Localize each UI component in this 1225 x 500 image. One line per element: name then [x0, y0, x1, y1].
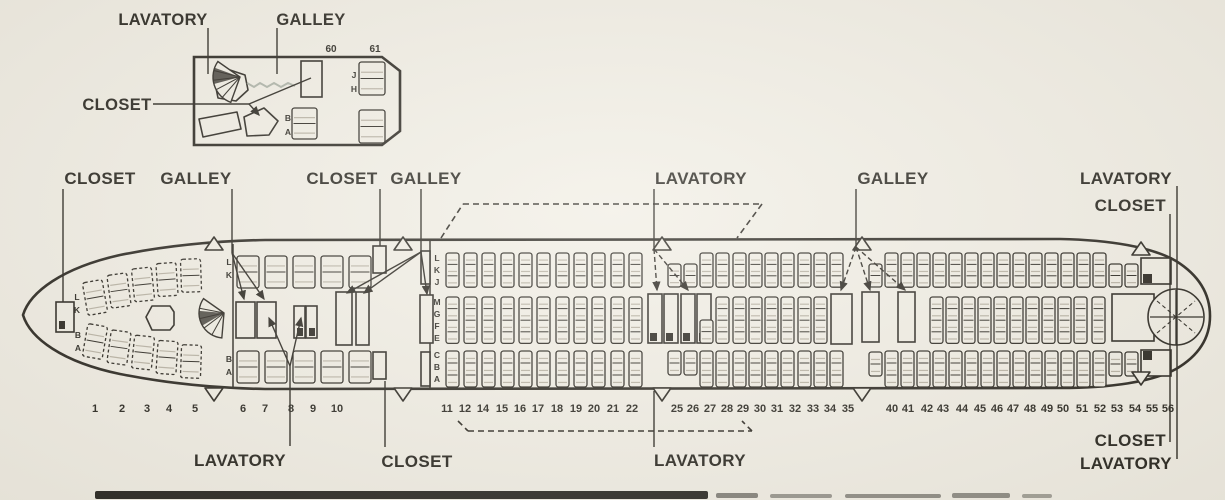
fixture-box — [898, 292, 915, 342]
row-number: 20 — [588, 403, 600, 415]
seat-block — [519, 253, 532, 287]
seat-block — [814, 253, 827, 287]
seat-block — [1061, 351, 1074, 387]
cabin-facility-label: CLOSET — [1095, 431, 1167, 450]
seat-block — [574, 351, 587, 387]
row-number: 22 — [626, 403, 638, 415]
row-number: 28 — [721, 403, 733, 415]
upper-deck-seat-letter: B — [285, 113, 291, 123]
seat-block-group — [156, 262, 178, 296]
scan-artifact-band — [716, 493, 758, 498]
seat-block — [781, 253, 794, 287]
row-number: 33 — [807, 403, 819, 415]
seat-block — [1077, 253, 1090, 287]
fixture-door-dot — [59, 321, 65, 329]
row-number: 10 — [331, 403, 343, 415]
seat-block — [781, 351, 794, 387]
seat-block — [464, 253, 477, 287]
seat-block — [501, 351, 514, 387]
seat-block — [933, 351, 946, 387]
cabin-facility-label: CLOSET — [1095, 196, 1167, 215]
fixture-box — [336, 292, 352, 345]
row-number: 32 — [789, 403, 801, 415]
nose-table — [146, 306, 174, 330]
seat-block — [716, 253, 729, 287]
row-number: 27 — [704, 403, 716, 415]
seat-block — [1045, 351, 1058, 387]
seat-letter: B — [226, 354, 232, 364]
row-number: 55 — [1146, 403, 1158, 415]
cabin-facility-label: GALLEY — [390, 169, 462, 188]
seat-block — [611, 253, 624, 287]
row-number: 53 — [1111, 403, 1123, 415]
row-number: 14 — [477, 403, 490, 415]
row-number: 4 — [166, 403, 173, 415]
row-number: 54 — [1129, 403, 1142, 415]
row-number: 19 — [570, 403, 582, 415]
scan-artifact-band — [1022, 494, 1052, 498]
upper-deck-facility-label: GALLEY — [276, 11, 345, 29]
seat-armrest-line — [183, 371, 199, 372]
row-number: 6 — [240, 403, 246, 415]
seat-letter: C — [434, 350, 440, 360]
fixture-door-dot — [650, 333, 657, 341]
row-number: 8 — [288, 403, 294, 415]
seat-block — [997, 351, 1010, 387]
seat-block — [592, 351, 605, 387]
seat-letter: A — [226, 367, 232, 377]
seat-letter: K — [74, 305, 81, 315]
seat-block — [749, 253, 762, 287]
seat-letter: L — [74, 292, 79, 302]
seat-block — [901, 253, 914, 287]
seat-divider — [183, 275, 200, 276]
upper-deck-facility-label: LAVATORY — [118, 11, 207, 29]
exit-door-triangle-icon — [394, 388, 412, 401]
seat-block — [446, 351, 459, 387]
seat-block — [733, 351, 746, 387]
seat-block — [629, 253, 642, 287]
seat-block-group — [180, 259, 201, 293]
row-number: 41 — [902, 403, 914, 415]
fixture-door-dot — [1143, 351, 1152, 360]
fixture-door-dot — [666, 333, 673, 341]
seat-block — [592, 253, 605, 287]
seat-block — [1029, 253, 1042, 287]
row-number: 25 — [671, 403, 683, 415]
row-number: 34 — [824, 403, 837, 415]
seat-block — [901, 351, 914, 387]
row-number: 11 — [441, 403, 453, 415]
scan-artifact-band — [95, 491, 708, 499]
fixture-door-dot — [1143, 274, 1152, 283]
seat-block — [700, 253, 713, 287]
aircraft-seat-map-scan: CLOSETGALLEYCLOSETGALLEYLAVATORYGALLEYLA… — [0, 0, 1225, 500]
seat-block — [1093, 253, 1106, 287]
seat-block — [749, 351, 762, 387]
seat-block — [1077, 351, 1090, 387]
upper-deck-seat-letter: H — [351, 84, 357, 94]
cabin-facility-label: LAVATORY — [194, 451, 286, 470]
seat-armrest-line — [183, 355, 199, 356]
row-number: 42 — [921, 403, 933, 415]
row-number: 17 — [532, 403, 544, 415]
seat-block — [981, 253, 994, 287]
seat-block — [700, 351, 713, 387]
row-number: 16 — [514, 403, 526, 415]
row-number: 48 — [1024, 403, 1036, 415]
seat-block — [965, 351, 978, 387]
seat-block — [611, 351, 624, 387]
seat-block — [765, 351, 778, 387]
row-number: 31 — [771, 403, 783, 415]
seat-block — [733, 253, 746, 287]
cabin-facility-label: LAVATORY — [654, 451, 746, 470]
seat-block — [519, 351, 532, 387]
seat-letter: G — [434, 309, 441, 319]
cabin-facility-label: CLOSET — [381, 452, 453, 471]
cabin-facility-label: LAVATORY — [1080, 169, 1172, 188]
row-number: 49 — [1041, 403, 1053, 415]
scan-artifact-band — [845, 494, 941, 498]
seat-letter: E — [434, 333, 440, 343]
row-number: 44 — [956, 403, 969, 415]
seat-block — [716, 351, 729, 387]
row-number: 45 — [974, 403, 986, 415]
seat-block — [917, 253, 930, 287]
row-number: 29 — [737, 403, 749, 415]
upper-deck-row-number: 61 — [369, 44, 381, 55]
seat-block — [1013, 351, 1026, 387]
seat-block — [537, 351, 550, 387]
seat-block — [798, 351, 811, 387]
seat-block — [629, 351, 642, 387]
seat-block — [981, 351, 994, 387]
seat-block — [482, 253, 495, 287]
row-number: 15 — [496, 403, 508, 415]
upper-deck-seat-letter: A — [285, 127, 291, 137]
cabin-facility-label: CLOSET — [64, 169, 136, 188]
fixture-box — [356, 292, 369, 345]
row-number: 47 — [1007, 403, 1019, 415]
cabin-facility-label: LAVATORY — [655, 169, 747, 188]
row-number: 43 — [937, 403, 949, 415]
seat-block — [446, 253, 459, 287]
row-number: 46 — [991, 403, 1003, 415]
row-number: 35 — [842, 403, 854, 415]
seat-block — [1093, 351, 1106, 387]
seat-block — [1029, 351, 1042, 387]
upper-deck-seat-letter: J — [352, 70, 357, 80]
seat-letter: K — [434, 265, 441, 275]
seat-block — [556, 351, 569, 387]
cabin-facility-label: LAVATORY — [1080, 454, 1172, 473]
seat-block — [556, 253, 569, 287]
seat-block — [1045, 253, 1058, 287]
wing-projection-dash — [742, 421, 752, 431]
exit-door-triangle-icon — [653, 388, 671, 401]
row-number: 12 — [459, 403, 471, 415]
row-number: 3 — [144, 403, 150, 415]
fixture-box — [831, 294, 852, 344]
fixture-box — [421, 352, 430, 386]
fixture-box — [257, 302, 276, 338]
seat-block — [501, 253, 514, 287]
fixture-box — [862, 292, 879, 342]
seat-block — [830, 253, 843, 287]
seat-block — [482, 351, 495, 387]
row-number: 7 — [262, 403, 268, 415]
seat-letter: J — [435, 277, 440, 287]
seat-block — [1061, 253, 1074, 287]
scan-artifact-band — [770, 494, 832, 498]
seat-block — [933, 253, 946, 287]
seat-letter: L — [226, 257, 231, 267]
wing-projection-dash — [458, 421, 468, 431]
seat-block — [765, 253, 778, 287]
seat-block — [464, 351, 477, 387]
seat-block — [885, 253, 898, 287]
wing-projection-dash — [737, 204, 762, 238]
row-number: 50 — [1057, 403, 1069, 415]
scan-artifact-band — [952, 493, 1010, 498]
seat-letter: L — [434, 253, 439, 263]
aircraft-seat-map-diagram: CLOSETGALLEYCLOSETGALLEYLAVATORYGALLEYLA… — [0, 0, 1225, 500]
seat-divider — [183, 361, 200, 362]
upper-deck-facility-label: CLOSET — [82, 96, 151, 114]
seat-block-group — [156, 340, 178, 374]
seat-block — [997, 253, 1010, 287]
seat-block — [537, 253, 550, 287]
wing-projection-dash — [441, 204, 463, 238]
row-number: 30 — [754, 403, 766, 415]
row-number: 5 — [192, 403, 198, 415]
seat-block — [949, 351, 962, 387]
fixture-box — [373, 352, 386, 379]
seat-armrest-line — [183, 285, 199, 286]
seat-block — [917, 351, 930, 387]
seat-armrest-line — [183, 269, 199, 270]
row-number: 9 — [310, 403, 316, 415]
seat-block-group — [131, 267, 154, 302]
cabin-facility-label: GALLEY — [160, 169, 232, 188]
seat-letter: K — [226, 270, 233, 280]
fixture-door-dot — [309, 328, 315, 336]
fixture-door-dot — [683, 333, 690, 341]
seat-block — [949, 253, 962, 287]
row-number: 52 — [1094, 403, 1106, 415]
seat-letter: B — [75, 330, 81, 340]
row-number: 51 — [1076, 403, 1088, 415]
seat-block-group — [131, 335, 154, 370]
seat-block — [965, 253, 978, 287]
row-number: 56 — [1162, 403, 1174, 415]
seat-letter: A — [75, 343, 81, 353]
seat-block — [885, 351, 898, 387]
cabin-facility-label: GALLEY — [857, 169, 929, 188]
row-number: 1 — [92, 403, 98, 415]
fixture-box — [236, 302, 255, 338]
row-number: 26 — [687, 403, 699, 415]
cabin-facility-label: CLOSET — [306, 169, 378, 188]
seat-letter: M — [433, 297, 440, 307]
seat-block — [814, 351, 827, 387]
fixture-box — [373, 246, 386, 273]
seat-letter: B — [434, 362, 440, 372]
seat-letter: F — [434, 321, 439, 331]
seat-block — [830, 351, 843, 387]
exit-door-triangle-icon — [853, 388, 871, 401]
row-number: 18 — [551, 403, 563, 415]
row-number: 21 — [607, 403, 619, 415]
seat-block-group — [180, 345, 201, 379]
row-number: 40 — [886, 403, 898, 415]
fixture-box — [420, 295, 433, 343]
seat-block — [574, 253, 587, 287]
row-number: 2 — [119, 403, 125, 415]
seat-block — [1013, 253, 1026, 287]
exit-door-triangle-icon — [205, 388, 223, 401]
upper-deck-row-number: 60 — [325, 44, 337, 55]
fixture-box — [301, 61, 322, 97]
seat-block — [798, 253, 811, 287]
seat-letter: A — [434, 374, 440, 384]
